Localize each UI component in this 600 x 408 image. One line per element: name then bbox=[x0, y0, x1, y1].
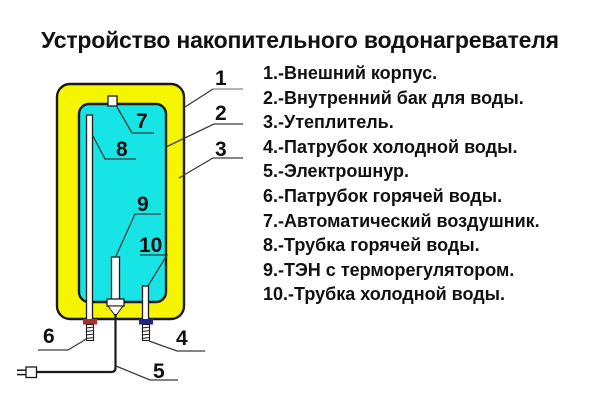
power-plug bbox=[17, 367, 37, 378]
callout-3: 3 bbox=[215, 138, 227, 161]
cold-collar bbox=[139, 319, 153, 325]
hot-water-tube bbox=[87, 115, 93, 321]
callout-6: 6 bbox=[43, 325, 55, 348]
callout-7: 7 bbox=[136, 110, 148, 133]
air-vent bbox=[108, 96, 117, 106]
water-heater-diagram: 1 2 3 7 8 9 10 6 4 5 bbox=[0, 0, 600, 408]
callout-1: 1 bbox=[215, 67, 227, 90]
callout-8: 8 bbox=[116, 138, 128, 161]
callout-9: 9 bbox=[137, 193, 149, 216]
callout-5: 5 bbox=[153, 360, 165, 383]
leader-line-5 bbox=[116, 366, 178, 380]
cold-inlet-pipe bbox=[139, 319, 153, 341]
hot-outlet-pipe bbox=[83, 319, 97, 341]
leader-line-3 bbox=[179, 158, 243, 178]
leader-line-1 bbox=[185, 89, 213, 107]
callout-4: 4 bbox=[176, 327, 188, 350]
cold-water-tube bbox=[143, 286, 149, 321]
callout-2: 2 bbox=[215, 102, 227, 125]
hot-collar bbox=[83, 319, 97, 325]
callout-10: 10 bbox=[139, 234, 162, 257]
water-heater-infographic: Устройство накопительного водонагревател… bbox=[0, 0, 600, 408]
